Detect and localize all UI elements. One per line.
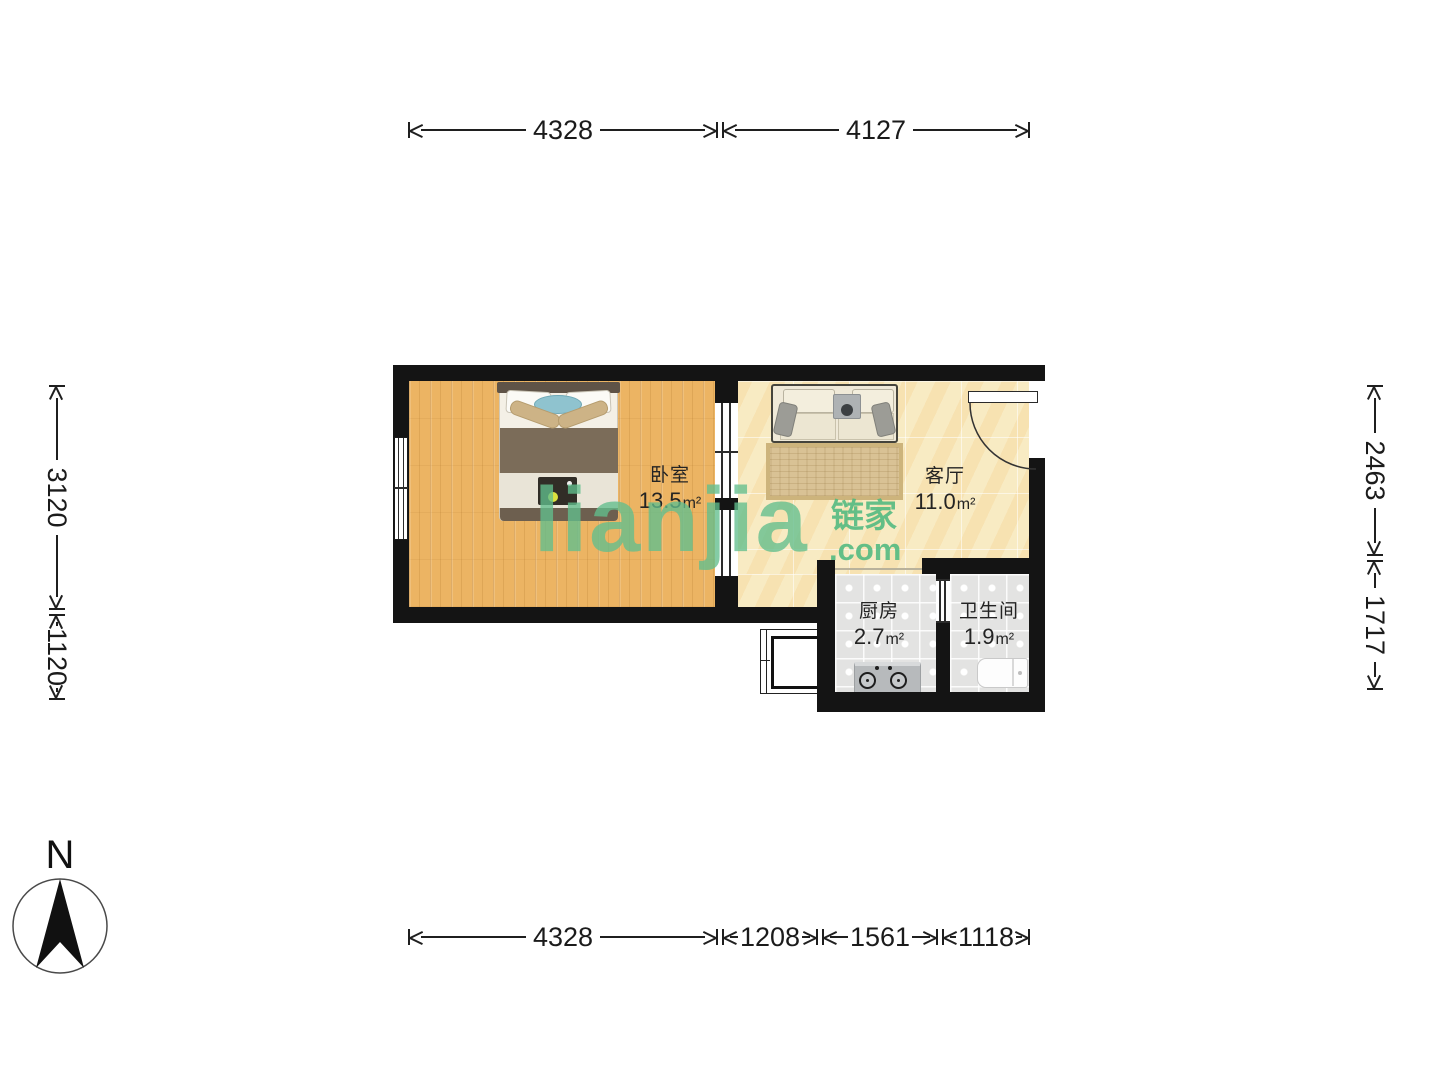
- floorplan-canvas: 卧室 13.5m² 客厅 11.0m² 厨房 2.7m² 卫生间 1.9m² l…: [0, 0, 1440, 1080]
- dim-left-upper: 3120: [47, 385, 67, 610]
- bathroom-door-cap-top: [936, 579, 950, 581]
- dim-right-lower: 1717: [1365, 560, 1385, 690]
- sofa-tray-bowl: [841, 404, 853, 416]
- dim-left-lower-value: 1120: [47, 626, 67, 688]
- dim-right-lower-value: 1717: [1365, 588, 1385, 662]
- bed-tray-dot: [567, 481, 572, 486]
- stove-burner-right-dot: [897, 679, 900, 682]
- dim-bottom-4-value: 1118: [956, 927, 1016, 947]
- bathroom-area: 1.9m²: [959, 624, 1019, 650]
- dim-bottom-1: 4328: [408, 927, 718, 947]
- entry-door-swing-arc: [965, 398, 1045, 476]
- bedroom-window-line-1: [398, 438, 399, 539]
- kitchen-area: 2.7m²: [854, 624, 904, 650]
- stove-burner-left-dot: [866, 679, 869, 682]
- partition-mid-tick: [715, 451, 738, 453]
- stove-knob-2: [888, 666, 892, 670]
- dim-top-bedroom: 4328: [408, 120, 718, 140]
- bedroom-name: 卧室: [639, 460, 701, 487]
- wall-right: [1029, 458, 1045, 712]
- kitchen-doorway-threshold: [835, 568, 922, 570]
- wall-interior-stub-bottom: [715, 576, 738, 607]
- wall-bottom-bedroom: [393, 607, 817, 623]
- dim-right-upper: 2463: [1365, 385, 1385, 556]
- partition-line-2: [729, 403, 731, 576]
- bathroom-name: 卫生间: [959, 596, 1019, 623]
- room-label-living: 客厅 11.0m²: [915, 461, 976, 515]
- dim-bottom-4: 1118: [942, 927, 1030, 947]
- kitchen-name: 厨房: [854, 596, 904, 623]
- bed-tray-lamp: [548, 492, 558, 502]
- bathtub-dot: [1018, 671, 1022, 675]
- dim-bottom-2: 1208: [722, 927, 818, 947]
- room-label-bedroom: 卧室 13.5m²: [639, 460, 701, 514]
- bedroom-window-line-2: [403, 438, 404, 539]
- kitchen-bay-window-line: [766, 630, 767, 693]
- living-area: 11.0m²: [915, 489, 976, 515]
- bed-duvet: [500, 428, 618, 473]
- bathroom-door-cap-bottom: [936, 621, 950, 623]
- bed-foot-strip: [500, 508, 618, 521]
- wall-interior-divider: [715, 498, 738, 510]
- dim-left-lower: 1120: [47, 614, 67, 700]
- kitchen-bay-window-inner: [771, 636, 822, 689]
- wall-kitchen-top: [922, 558, 1029, 574]
- dim-right-upper-value: 2463: [1365, 433, 1385, 507]
- living-name: 客厅: [915, 461, 976, 488]
- livingroom-floor-lower: [737, 574, 817, 607]
- bedroom-window-divider: [394, 487, 408, 489]
- bathroom-door-line-2: [944, 580, 946, 622]
- room-label-bathroom: 卫生间 1.9m²: [959, 596, 1019, 650]
- dim-bottom-3-value: 1561: [848, 927, 912, 947]
- dim-top-living: 4127: [722, 120, 1030, 140]
- wall-kitchen-left: [817, 560, 835, 712]
- bathroom-door-line-1: [939, 580, 941, 622]
- wall-interior-stub-top: [715, 381, 738, 403]
- bedroom-area: 13.5m²: [639, 488, 701, 514]
- kitchen-bay-window-tick: [760, 660, 770, 661]
- bathtub-divider: [1012, 659, 1014, 686]
- partition-line-1: [721, 403, 723, 576]
- dim-left-upper-value: 3120: [47, 460, 67, 534]
- dim-bottom-2-value: 1208: [738, 927, 802, 947]
- room-label-kitchen: 厨房 2.7m²: [854, 596, 904, 650]
- partition-opening: [715, 403, 738, 576]
- dim-top-living-value: 4127: [839, 120, 913, 140]
- livingroom-rug: [766, 443, 903, 500]
- wall-bottom-kitchen: [817, 692, 1045, 712]
- bedroom-window: [394, 437, 408, 540]
- compass-icon: [8, 835, 118, 985]
- stove-knob-1: [875, 666, 879, 670]
- dim-top-bedroom-value: 4328: [526, 120, 600, 140]
- wall-kitchen-bath: [936, 622, 950, 692]
- entry-door-leaf: [968, 391, 1038, 403]
- dim-bottom-1-value: 4328: [526, 927, 600, 947]
- wall-top: [393, 365, 1045, 381]
- dim-bottom-3: 1561: [822, 927, 938, 947]
